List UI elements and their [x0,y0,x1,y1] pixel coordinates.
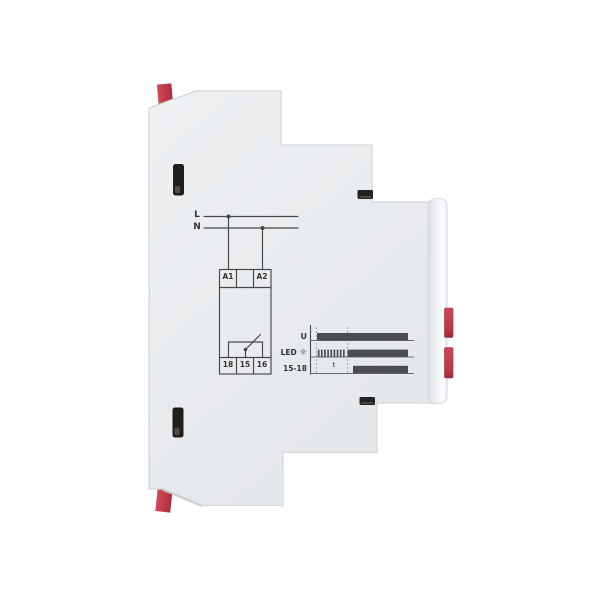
terminal-lock-tab-bottom [445,348,454,379]
vent-slot-bottom [360,397,376,405]
delay-time-label: t [329,362,339,369]
junction-dot-l [227,215,231,219]
neutral-label: N [190,223,204,232]
led-solid-bar [348,350,409,357]
timing-row-u-label: U [280,333,307,341]
terminal-15-label: 15 [237,361,254,369]
terminal-a2-label: A2 [254,273,271,281]
terminal-lock-tab-top [445,308,454,338]
terminal-18-label: 18 [220,361,237,369]
device-drawing [0,0,600,600]
led-text: LED [281,348,297,357]
product-illustration: L N A1 A2 18 15 16 U LED ☼ 15-18 t [0,0,600,600]
rail-slot-top [173,164,184,196]
terminal-16-label: 16 [254,361,271,369]
sun-rays-icon: ☼ [299,348,307,358]
timing-row-contact-label: 15-18 [276,365,307,373]
device-body [149,91,434,506]
led-blink-bars [318,350,345,357]
phase-label: L [190,211,204,220]
vent-slot-top [358,190,374,199]
contact-bar [353,366,408,374]
junction-dot-n [261,226,265,230]
rail-slot-bottom [173,408,184,438]
timing-row-led-label: LED ☼ [268,349,307,358]
u-bar [317,333,408,341]
terminal-a1-label: A1 [220,273,237,281]
